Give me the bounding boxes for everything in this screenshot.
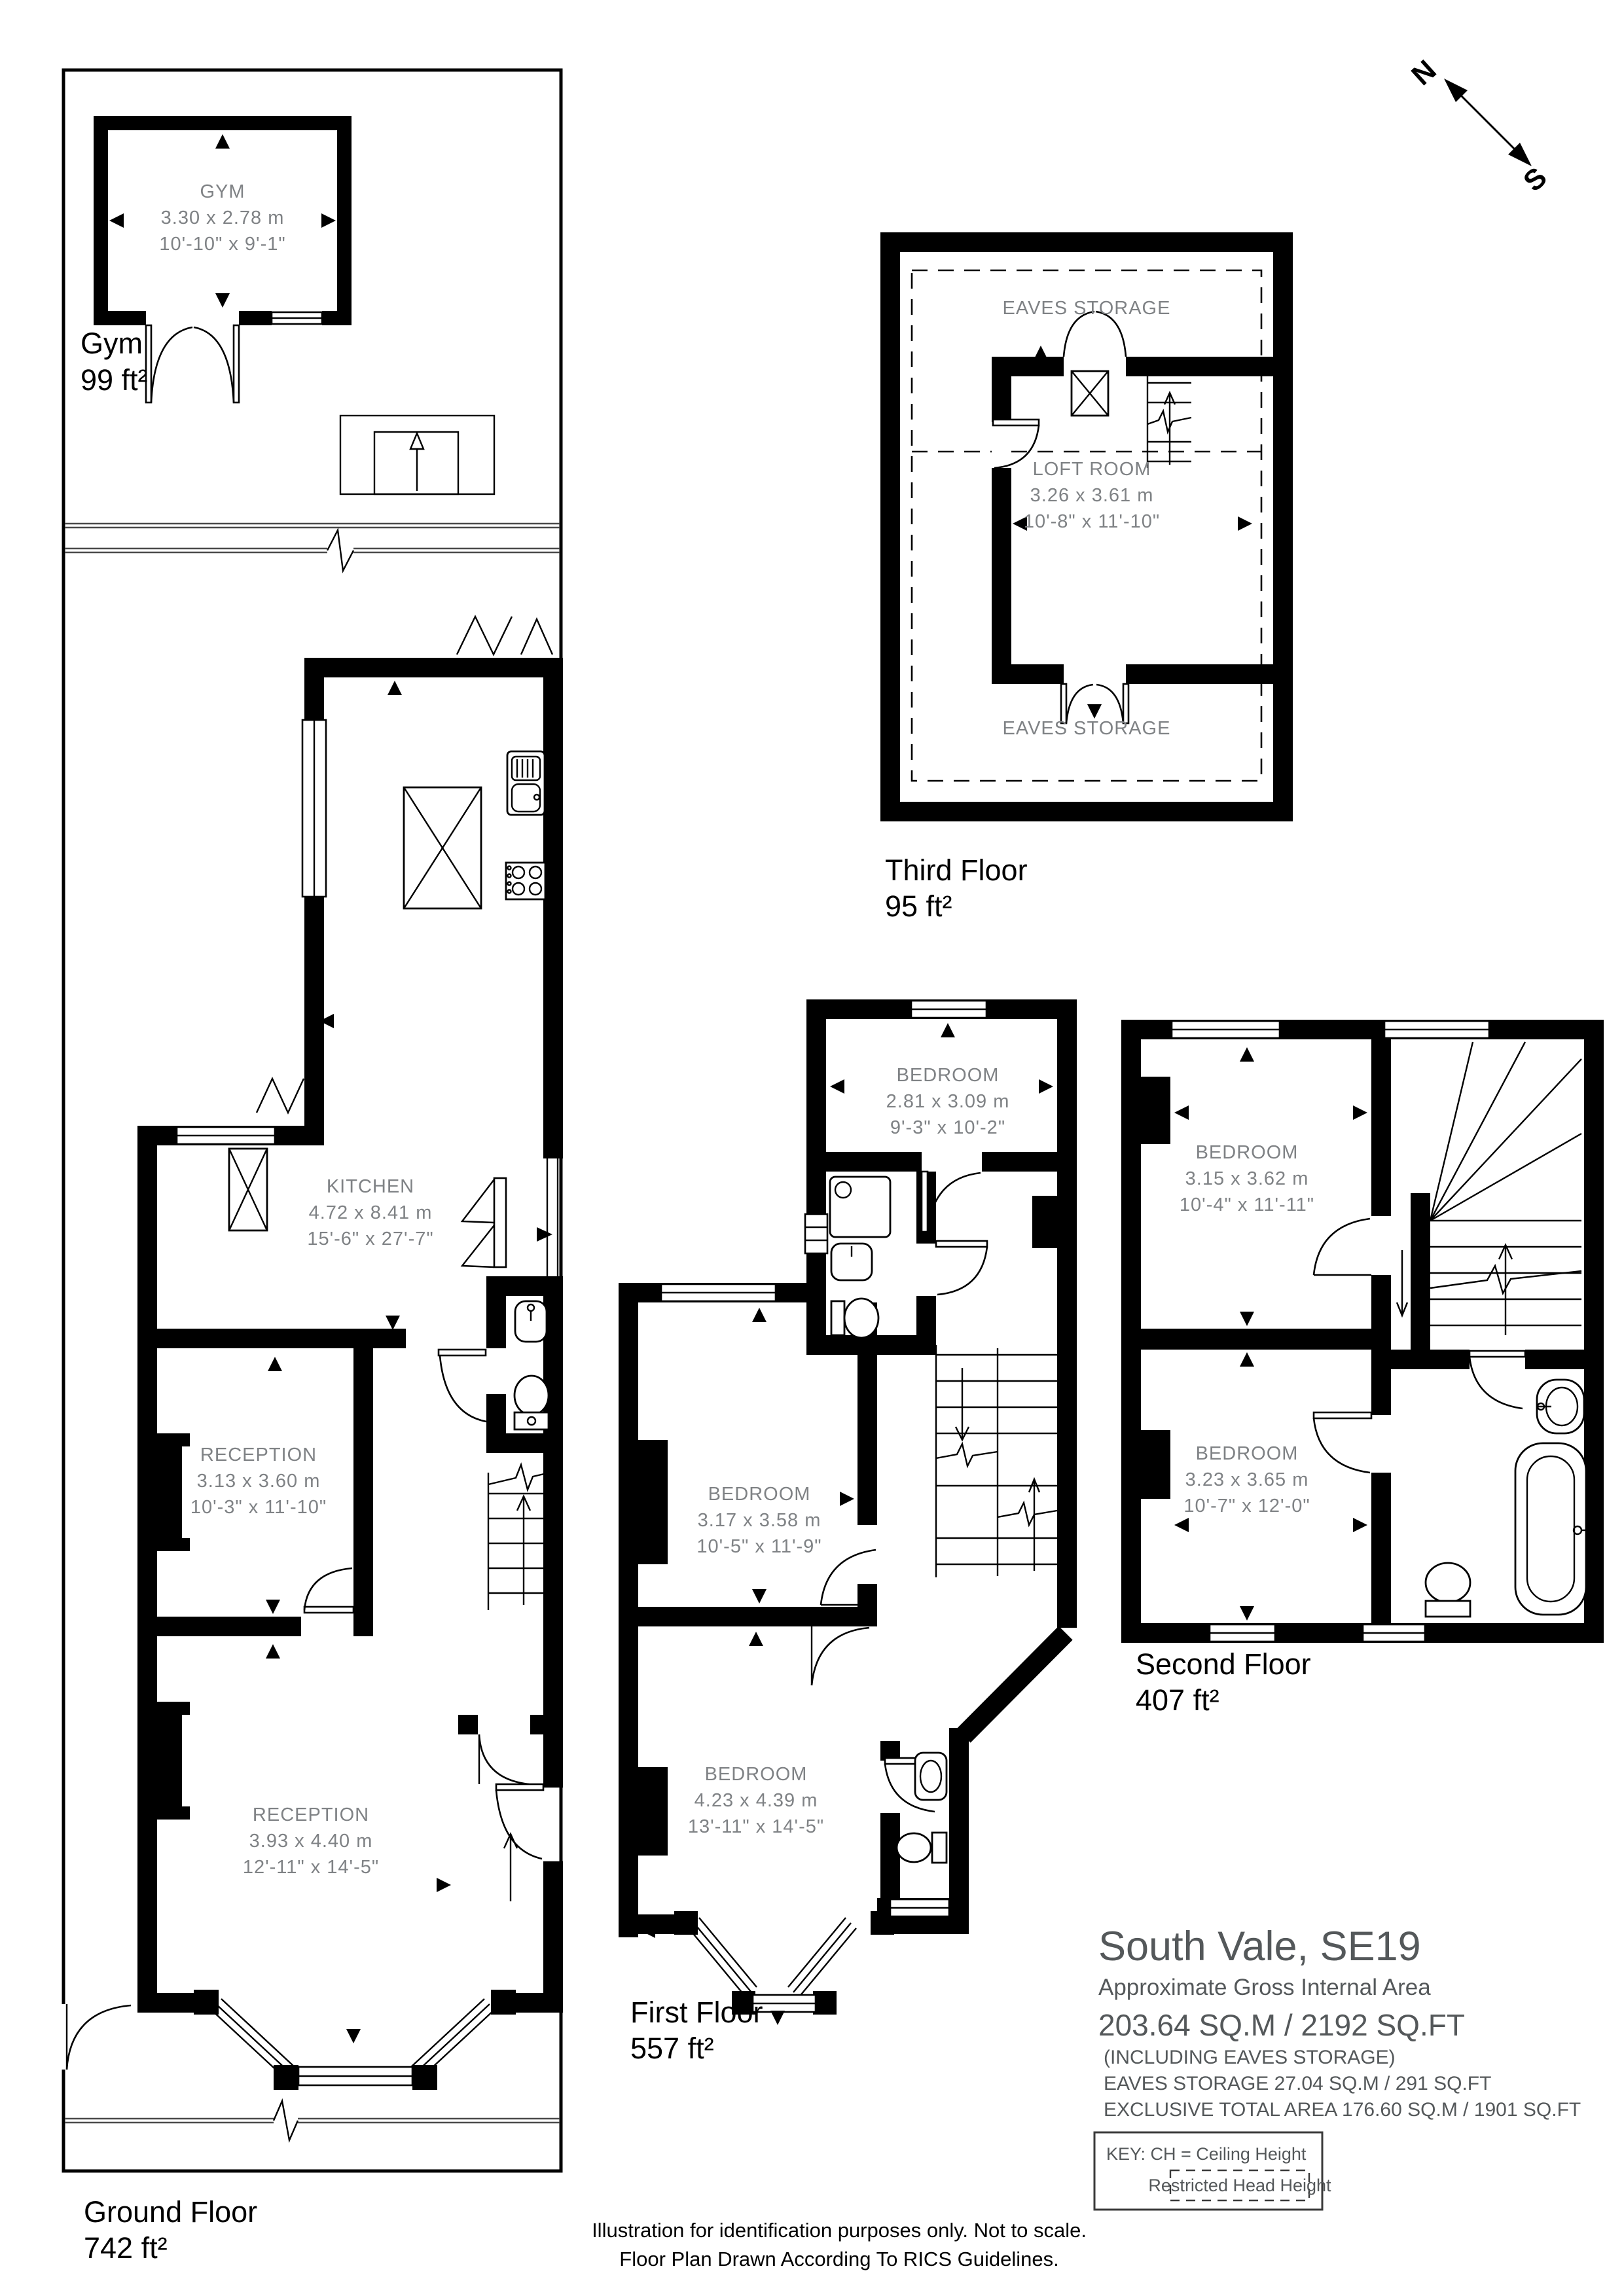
second-floor-plan: BEDROOM 3.15 x 3.62 m 10'-4" x 11'-11" B… xyxy=(1121,1020,1604,1717)
gym-floor-label: Gym xyxy=(81,327,143,360)
loft-dormer xyxy=(1064,312,1126,416)
ff-toilet-icon xyxy=(831,1299,878,1338)
restricted-label: Restricted Head Height xyxy=(1148,2176,1331,2195)
first-floor-area: 557 ft² xyxy=(630,2032,714,2065)
eaves-storage-top-label: EAVES STORAGE xyxy=(1003,298,1171,319)
ff-sink-icon xyxy=(831,1244,872,1280)
third-floor-label: Third Floor xyxy=(885,853,1028,887)
sf-toilet-icon xyxy=(1426,1563,1470,1617)
floorplan-canvas: GYM 3.30 x 2.78 m 10'-10" x 9'-1" Gym 99… xyxy=(0,0,1624,2296)
gym-room-imperial: 10'-10" x 9'-1" xyxy=(159,234,285,255)
break-line-icon xyxy=(327,530,353,571)
kitchen-sink-icon xyxy=(507,751,545,815)
kitchen-metric: 4.72 x 8.41 m xyxy=(309,1202,433,1223)
kitchen-island xyxy=(404,787,481,908)
side-gate-door xyxy=(61,2004,131,2070)
ff2-toilet-icon xyxy=(897,1833,947,1863)
south-label: S xyxy=(1517,161,1553,198)
footer-line1: Illustration for identification purposes… xyxy=(592,2219,1087,2242)
sf-front-bedroom-door xyxy=(1314,1412,1371,1473)
reception1-name: RECEPTION xyxy=(200,1444,317,1465)
sf-rear-bedroom-name: BEDROOM xyxy=(1196,1142,1299,1163)
reception1-imperial: 10'-3" x 11'-10" xyxy=(190,1497,327,1518)
sf-rear-bedroom-door xyxy=(1314,1219,1371,1275)
ff-rear-bedroom-imperial: 9'-3" x 10'-2" xyxy=(890,1117,1005,1138)
ff-middle-bedroom-name: BEDROOM xyxy=(708,1484,811,1505)
title-block: South Vale, SE19 Approximate Gross Inter… xyxy=(1098,1924,1581,2121)
sf-rear-bedroom-metric: 3.15 x 3.62 m xyxy=(1185,1168,1309,1189)
gym-room-metric: 3.30 x 2.78 m xyxy=(161,207,285,228)
key-box: KEY: CH = Ceiling Height Restricted Head… xyxy=(1094,2132,1331,2210)
break-line-icon xyxy=(274,2101,298,2140)
wc-door xyxy=(439,1350,486,1422)
title-subtitle: Approximate Gross Internal Area xyxy=(1098,1975,1431,2000)
gym-plan: GYM 3.30 x 2.78 m 10'-10" x 9'-1" Gym 99… xyxy=(81,116,352,403)
property-title: South Vale, SE19 xyxy=(1098,1924,1421,1969)
wc-sink-icon xyxy=(515,1301,547,1342)
footer-line2: Floor Plan Drawn According To RICS Guide… xyxy=(619,2248,1058,2270)
reception2-imperial: 12'-11" x 14'-5" xyxy=(243,1857,379,1878)
ff-front-bedroom-metric: 4.23 x 4.39 m xyxy=(695,1790,818,1811)
step-arrow-icon xyxy=(410,433,424,449)
ff-middle-bedroom-imperial: 10'-5" x 11'-9" xyxy=(696,1536,821,1557)
loft-room-imperial: 10'-8" x 11'-10" xyxy=(1024,511,1160,532)
ff-middle-bedroom-metric: 3.17 x 3.58 m xyxy=(698,1510,821,1531)
shower-icon xyxy=(830,1177,890,1237)
eaves-storage-bottom-label: EAVES STORAGE xyxy=(1003,718,1171,739)
footer: Illustration for identification purposes… xyxy=(592,2219,1087,2270)
break-line-icon xyxy=(998,1503,1057,1525)
sf-rear-bedroom-imperial: 10'-4" x 11'-11" xyxy=(1180,1194,1314,1215)
reception2-metric: 3.93 x 4.40 m xyxy=(249,1831,373,1852)
gym-window xyxy=(272,312,322,324)
side-return-window xyxy=(177,1127,275,1144)
sf-front-bedroom-imperial: 10'-7" x 12'-0" xyxy=(1183,1496,1310,1516)
reception1-door xyxy=(304,1568,353,1613)
including-note: (INCLUDING EAVES STORAGE) xyxy=(1104,2047,1396,2068)
kitchen-side-window xyxy=(302,720,326,897)
first-floor-label: First Floor xyxy=(630,1996,763,2029)
loft-room-metric: 3.26 x 3.61 m xyxy=(1030,485,1154,506)
key-line: KEY: CH = Ceiling Height xyxy=(1106,2144,1307,2164)
second-floor-area: 407 ft² xyxy=(1136,1683,1219,1717)
compass: N S xyxy=(1405,54,1553,198)
sf-bathroom-door xyxy=(1470,1351,1525,1408)
ground-floor-label: Ground Floor xyxy=(84,2195,257,2229)
ff-rear-bedroom-name: BEDROOM xyxy=(897,1065,1000,1086)
rear-bathroom-door xyxy=(936,1241,987,1295)
ground-floor-plan: KITCHEN 4.72 x 8.41 m 15'-6" x 27'-7" RE… xyxy=(84,617,563,2265)
second-floor-label: Second Floor xyxy=(1136,1647,1311,1681)
north-label: N xyxy=(1405,54,1442,92)
sf-bath-icon xyxy=(1515,1443,1592,1615)
ff-front-bedroom-imperial: 13'-11" x 14'-5" xyxy=(688,1816,824,1837)
third-floor-stairs xyxy=(1147,368,1191,468)
reception1-metric: 3.13 x 3.60 m xyxy=(197,1471,321,1492)
exclusive-area: EXCLUSIVE TOTAL AREA 176.60 SQ.M / 1901 … xyxy=(1104,2099,1581,2121)
loft-room-name: LOFT ROOM xyxy=(1033,459,1151,480)
third-floor-plan: EAVES STORAGE EAVES STORAGE LOFT ROOM 3.… xyxy=(880,232,1293,923)
ff-rear-bedroom-metric: 2.81 x 3.09 m xyxy=(886,1091,1010,1112)
bifold-door xyxy=(462,1158,558,1280)
floorplan-page: GYM 3.30 x 2.78 m 10'-10" x 9'-1" Gym 99… xyxy=(0,0,1624,2296)
first-floor-walls xyxy=(619,999,1077,2015)
sf-front-bedroom-metric: 3.23 x 3.65 m xyxy=(1185,1469,1309,1490)
hob-icon xyxy=(506,863,545,899)
sf-sink-icon xyxy=(1537,1380,1584,1433)
ff-front-bedroom-name: BEDROOM xyxy=(705,1764,808,1785)
gym-double-door xyxy=(146,325,239,403)
loft-door xyxy=(993,420,1039,468)
reception2-name: RECEPTION xyxy=(253,1804,369,1825)
ground-floor-area: 742 ft² xyxy=(84,2231,168,2265)
third-floor-area: 95 ft² xyxy=(885,889,952,923)
front-bedroom-door xyxy=(812,1626,869,1685)
skylight-box xyxy=(229,1149,267,1230)
sf-front-bedroom-name: BEDROOM xyxy=(1196,1443,1299,1464)
eaves-area: EAVES STORAGE 27.04 SQ.M / 291 SQ.FT xyxy=(1104,2073,1491,2094)
wc-toilet-icon xyxy=(514,1376,549,1429)
break-line-icon xyxy=(936,1444,998,1466)
total-area: 203.64 SQ.M / 2192 SQ.FT xyxy=(1098,2008,1465,2042)
first-floor-plan: BEDROOM 2.81 x 3.09 m 9'-3" x 10'-2" BED… xyxy=(619,999,1077,2065)
vestibule-door xyxy=(479,1734,529,1784)
gym-floor-area: 99 ft² xyxy=(81,363,148,397)
gym-room-name: GYM xyxy=(200,181,245,202)
kitchen-name: KITCHEN xyxy=(327,1176,414,1197)
kitchen-imperial: 15'-6" x 27'-7" xyxy=(307,1229,433,1249)
first-floor-stairs xyxy=(936,1345,1057,1577)
third-floor-arrows xyxy=(1013,346,1252,719)
ff2-sink-icon xyxy=(915,1753,947,1800)
garden-deck xyxy=(340,416,494,494)
